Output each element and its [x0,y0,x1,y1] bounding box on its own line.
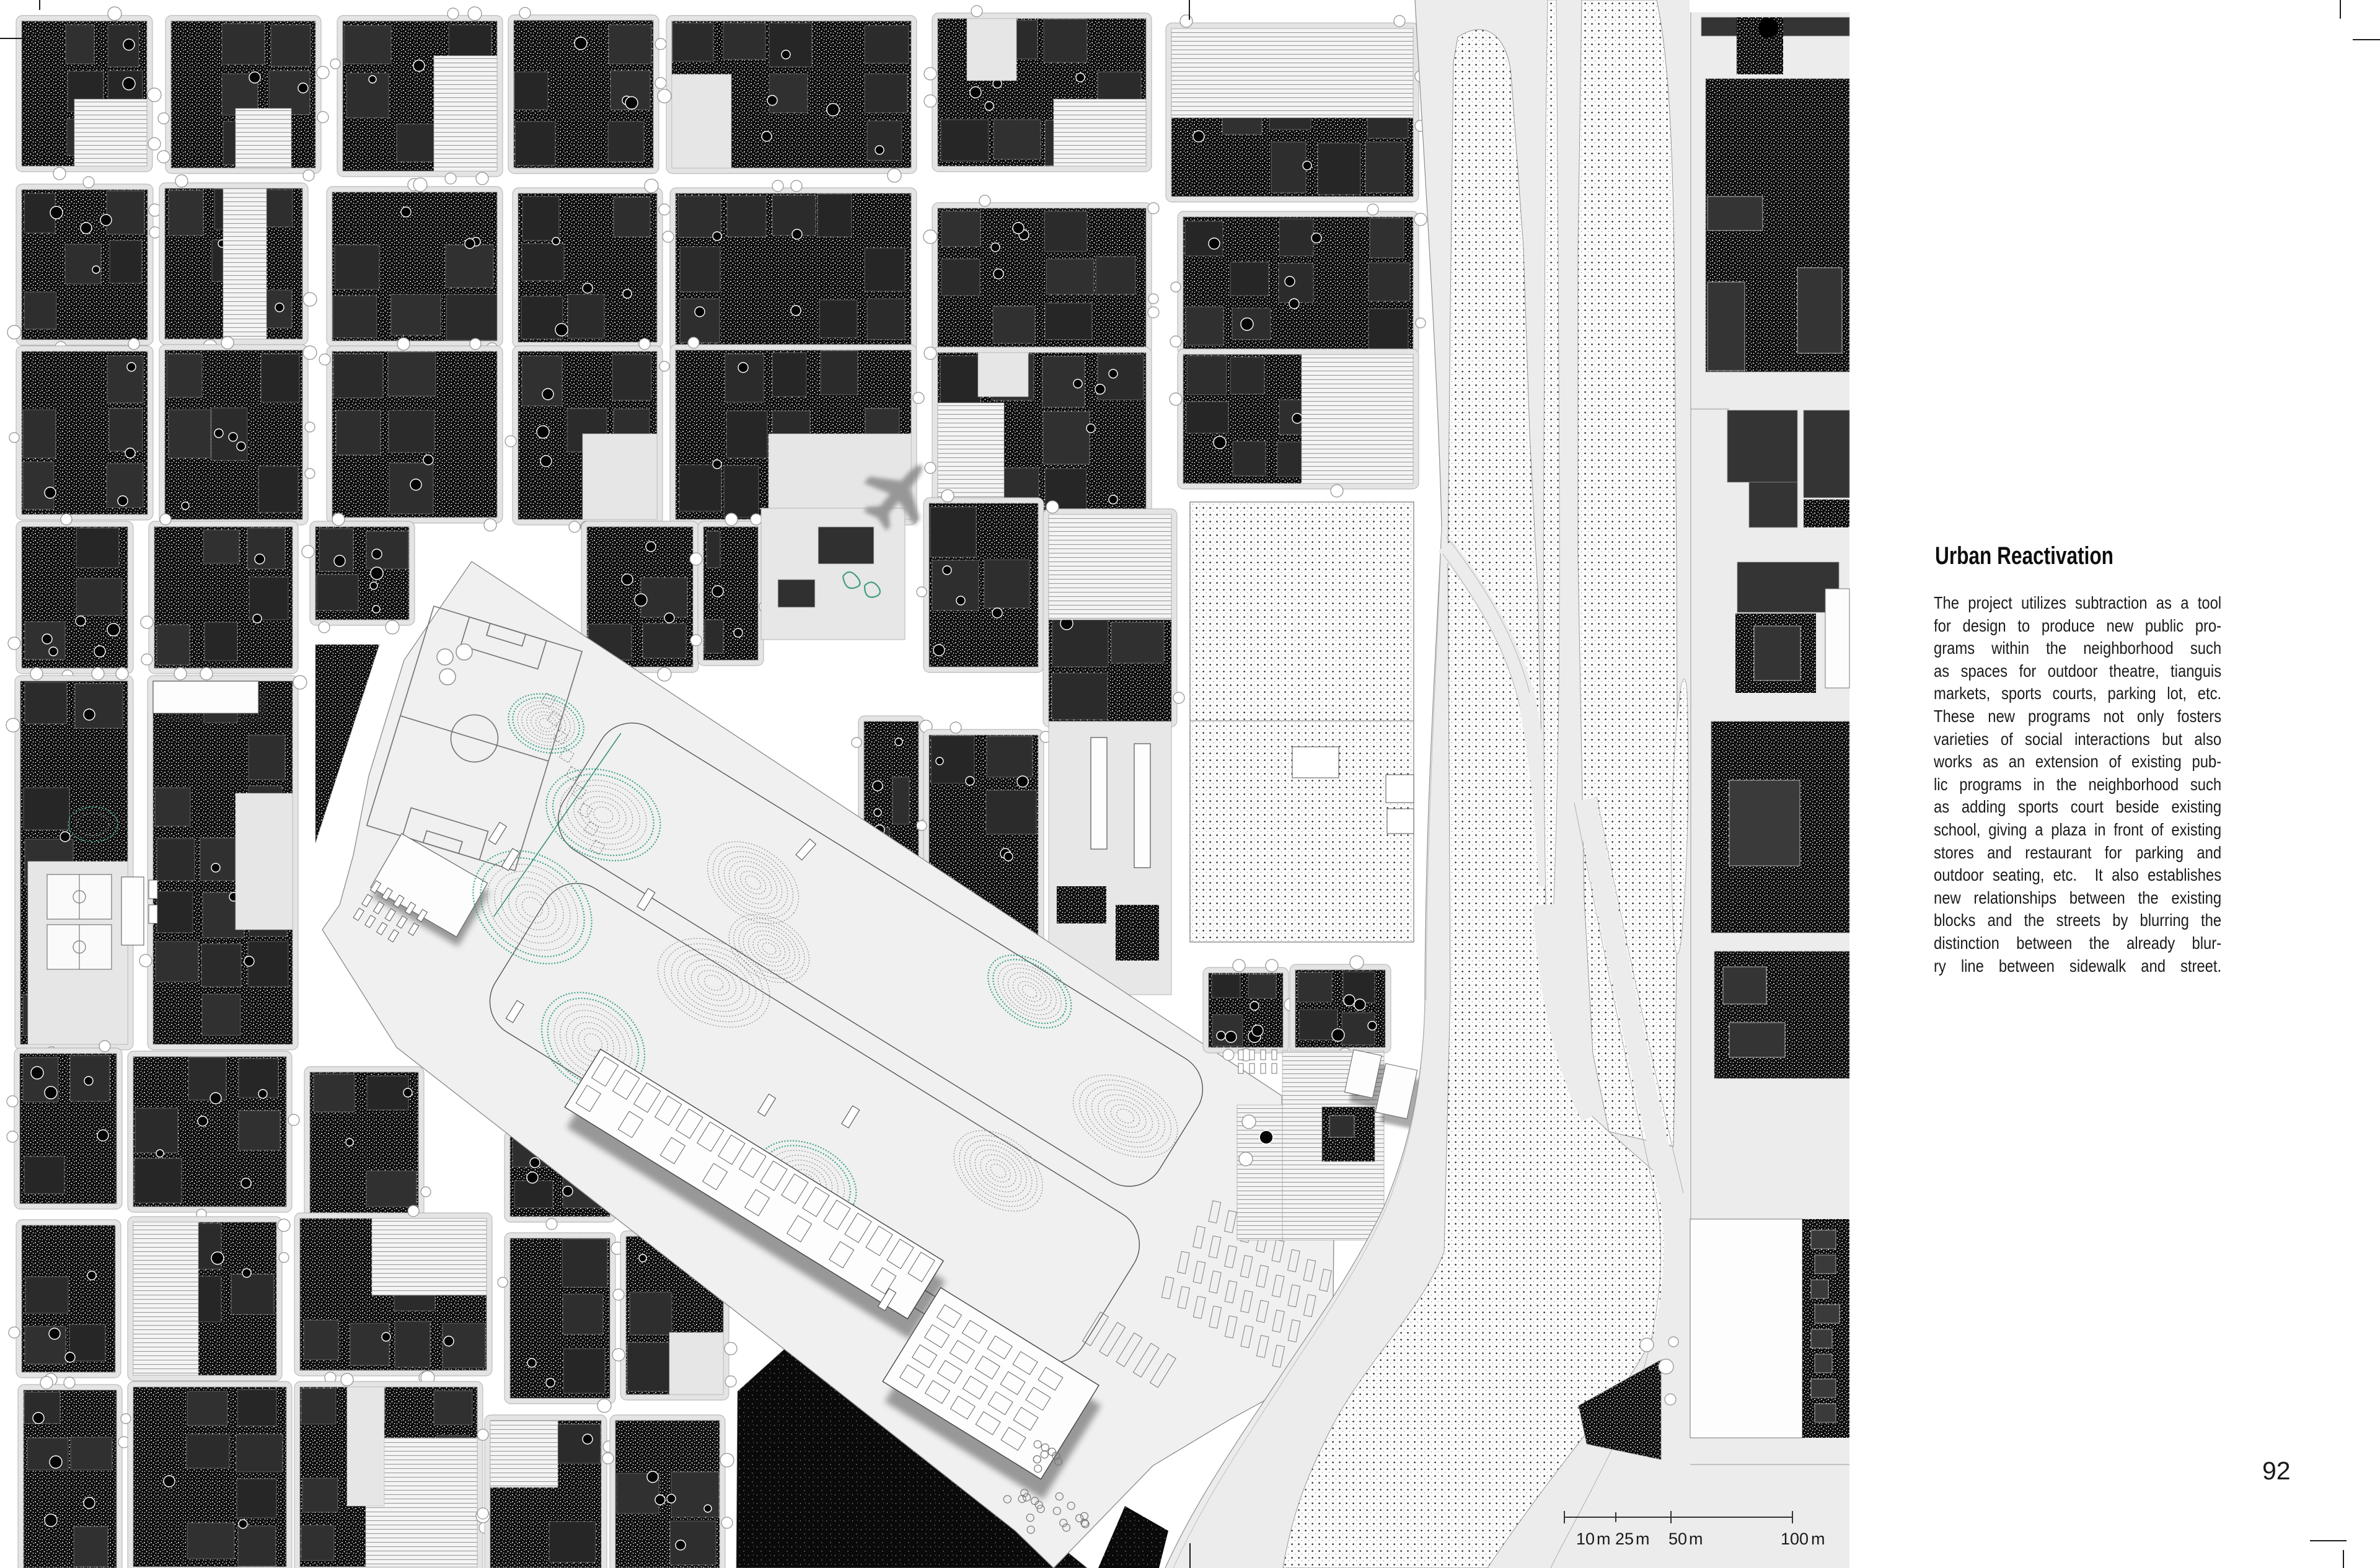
svg-text:100: 100 [1781,1530,1809,1548]
svg-text:m: m [1811,1530,1825,1548]
svg-text:50: 50 [1668,1530,1687,1548]
svg-text:m: m [1636,1530,1650,1548]
svg-text:m: m [1689,1530,1703,1548]
svg-text:25: 25 [1615,1530,1634,1548]
svg-text:10: 10 [1576,1530,1595,1548]
svg-text:m: m [1597,1530,1611,1548]
